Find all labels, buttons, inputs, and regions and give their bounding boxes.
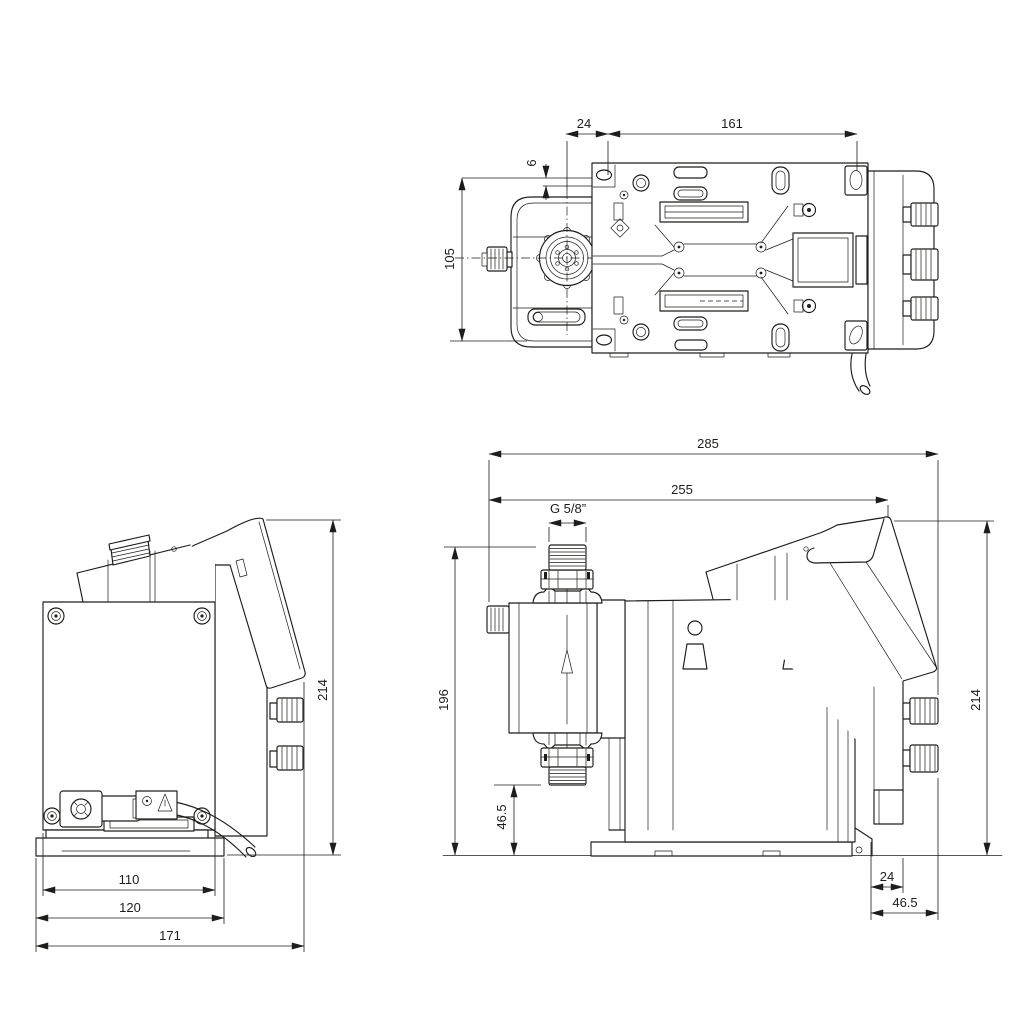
- front-view: 214 110 120 171: [36, 518, 341, 952]
- dim-label-214-side: 214: [968, 689, 983, 711]
- dim-label-24-side: 24: [880, 869, 894, 884]
- dim-24-top: 24: [566, 116, 608, 134]
- clamp-handle-top: [528, 309, 585, 325]
- dim-thread-side: G 5/8”: [549, 501, 586, 542]
- wall-bracket-side: [874, 790, 903, 824]
- connection-knobs-top: [903, 203, 938, 320]
- dim-label-110-front: 110: [119, 872, 140, 887]
- dim-161-top: 161: [608, 116, 857, 134]
- baseplate-top: [592, 163, 868, 357]
- front-side-knobs: [270, 698, 303, 770]
- dim-255-side: 255: [489, 482, 888, 517]
- dosing-head-side: [487, 545, 602, 785]
- dim-label-thread-side: G 5/8”: [550, 501, 586, 516]
- dim-label-255-side: 255: [671, 482, 693, 497]
- pump-dimensional-drawing: 24 161 6 105: [0, 0, 1024, 1024]
- dim-label-6-top: 6: [524, 159, 539, 166]
- dim-6-top: 6: [462, 159, 592, 200]
- discharge-valve-top: [533, 545, 602, 603]
- dim-214-side: 214: [894, 521, 994, 855]
- dim-label-171-front: 171: [159, 928, 181, 943]
- suction-valve-bottom: [533, 733, 602, 785]
- bleed-valve-knob-side: [487, 606, 509, 633]
- dim-label-24-top: 24: [577, 116, 591, 131]
- dim-label-161-top: 161: [721, 116, 743, 131]
- bleed-valve-knob-top: [482, 247, 512, 271]
- dim-label-285-side: 285: [697, 436, 719, 451]
- dim-label-214-front: 214: [315, 679, 330, 701]
- warning-label: [136, 791, 177, 819]
- dim-label-46-5-lower: 46.5: [892, 895, 917, 910]
- cable-end: [245, 846, 258, 859]
- head-backplate: [597, 600, 625, 738]
- side-view: 285 255 G 5/8” 196 46.5: [436, 436, 1002, 920]
- power-cable-top: [851, 354, 872, 396]
- dim-label-46-5-upper: 46.5: [494, 804, 509, 829]
- dim-label-120-front: 120: [119, 900, 141, 915]
- side-connection-knobs: [903, 698, 938, 772]
- dim-label-105-top: 105: [442, 248, 457, 270]
- dim-label-196-side: 196: [436, 689, 451, 711]
- dim-46-5-upper-side: 46.5: [494, 785, 541, 855]
- top-view: 24 161 6 105: [442, 116, 938, 396]
- technical-drawing-canvas: 24 161 6 105: [0, 0, 1024, 1024]
